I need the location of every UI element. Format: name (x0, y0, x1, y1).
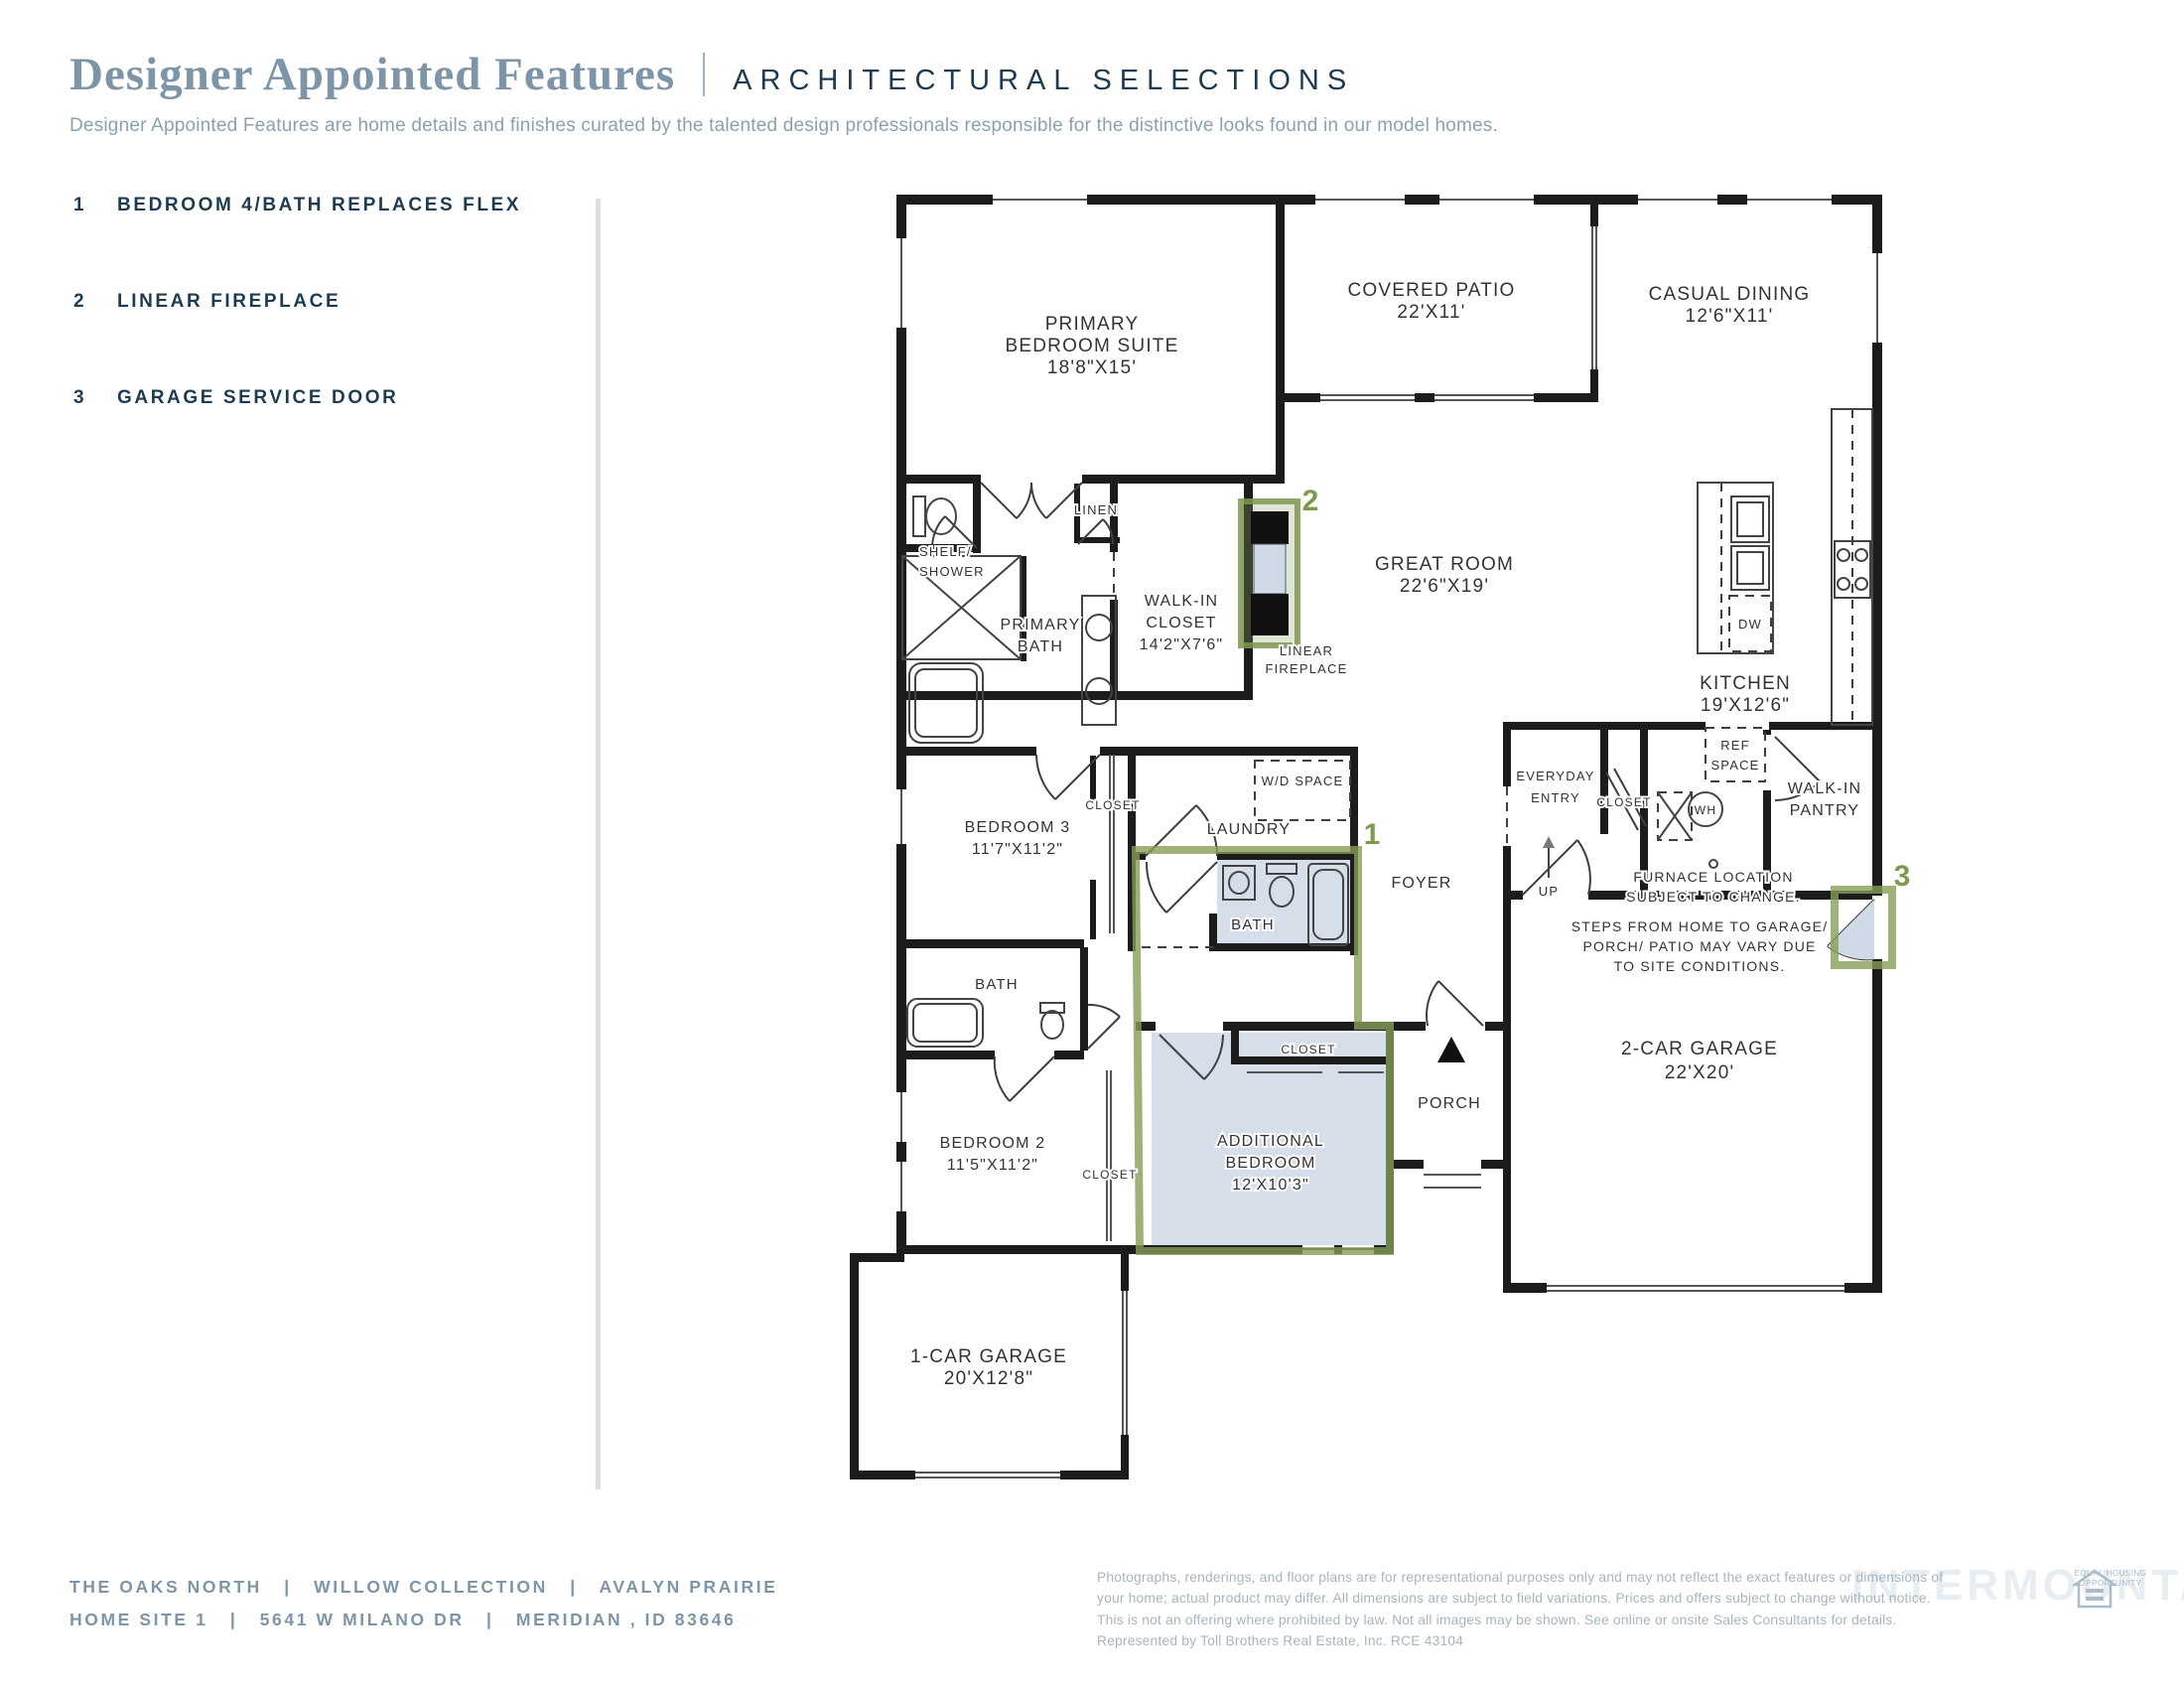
marker-1: 1 (1364, 818, 1381, 851)
room-label-primary-bath: PRIMARY (1000, 617, 1080, 633)
room-label-covered-patio: COVERED PATIO (1347, 280, 1515, 301)
label-linear-fireplace: LINEAR (1280, 643, 1333, 658)
note-steps: STEPS FROM HOME TO GARAGE/ (1571, 918, 1829, 934)
room-label-primary-bedroom: BEDROOM SUITE (1005, 336, 1178, 356)
room-label-additional-bedroom: BEDROOM (1225, 1155, 1315, 1172)
room-label-2-car-garage: 2-CAR GARAGE (1621, 1039, 1778, 1059)
room-label-bath: BATH (1231, 916, 1275, 933)
label-dw: DW (1738, 617, 1762, 632)
label-wh: WH (1695, 803, 1716, 817)
room-label-additional-bedroom: ADDITIONAL (1217, 1133, 1324, 1150)
room-label-bath: BATH (975, 976, 1019, 993)
room-dims-2-car-garage: 22'X20' (1665, 1062, 1735, 1083)
room-label-bedroom2: BEDROOM 2 (940, 1135, 1046, 1152)
room-label-porch: PORCH (1418, 1095, 1481, 1112)
tub-icon (907, 999, 983, 1047)
room-label-walk-in-pantry: WALK-IN (1788, 780, 1861, 797)
room-dims-casual-dining: 12'6"X11' (1686, 306, 1774, 327)
label-linear-fireplace: FIREPLACE (1265, 661, 1347, 676)
label-shower: SHOWER (919, 564, 985, 579)
room-label-kitchen: KITCHEN (1700, 673, 1791, 694)
note-furnace: FURNACE LOCATION (1633, 869, 1793, 885)
room-dims-bedroom3: 11'7"X11'2" (972, 841, 1063, 858)
label-up: UP (1539, 884, 1559, 899)
footer-disclaimer: Photographs, renderings, and floor plans… (1097, 1567, 2010, 1652)
label-ref-space: SPACE (1710, 758, 1759, 773)
room-label-great-room: GREAT ROOM (1375, 554, 1514, 575)
label-linen: LINEN (1074, 502, 1118, 517)
room-dims-great-room: 22'6"X19' (1400, 576, 1489, 597)
windows (896, 195, 1882, 1479)
label-closet: CLOSET (1085, 798, 1140, 812)
footer-line2: HOME SITE 1 | 5641 W MILANO DR | MERIDIA… (69, 1610, 777, 1630)
room-label-primary-bedroom: PRIMARY (1045, 314, 1140, 335)
room-label-walk-in-pantry: PANTRY (1790, 802, 1860, 819)
room-dims-covered-patio: 22'X11' (1397, 302, 1465, 323)
disclaimer-line: Represented by Toll Brothers Real Estate… (1097, 1630, 2010, 1651)
label-wd-space: W/D SPACE (1262, 774, 1344, 788)
marker-2: 2 (1302, 485, 1319, 517)
room-label-primary-bath: BATH (1018, 638, 1063, 655)
note-steps: PORCH/ PATIO MAY VARY DUE (1582, 938, 1816, 954)
label-closet: CLOSET (1082, 1168, 1137, 1182)
label-shelf: SHELF/ (919, 544, 972, 559)
kitchen-counter-icon (1832, 409, 1872, 725)
room-dims-walk-in-closet: 14'2"X7'6" (1140, 636, 1224, 653)
room-label-laundry: LAUNDRY (1207, 821, 1292, 838)
marker-3: 3 (1894, 860, 1911, 893)
room-label-everyday-entry: EVERYDAY (1516, 769, 1594, 783)
disclaimer-line: This is not an offering where prohibited… (1097, 1610, 2010, 1630)
footer-community-info: THE OAKS NORTH | WILLOW COLLECTION | AVA… (69, 1577, 777, 1642)
equal-housing-logo: EQUAL HOUSING OPPORTUNITY (2073, 1569, 2148, 1590)
room-label-walk-in-closet: WALK-IN (1145, 593, 1218, 610)
room-label-walk-in-closet: CLOSET (1146, 615, 1216, 632)
disclaimer-line: Photographs, renderings, and floor plans… (1097, 1567, 2010, 1588)
disclaimer-line: your home; actual product may differ. Al… (1097, 1588, 2010, 1609)
room-dims-additional-bedroom: 12'X10'3" (1232, 1177, 1309, 1194)
floor-plan: PRIMARY BEDROOM SUITE 18'8"X15' COVERED … (0, 0, 2184, 1688)
room-label-1-car-garage: 1-CAR GARAGE (910, 1346, 1067, 1367)
room-dims-bedroom2: 11'5"X11'2" (947, 1157, 1038, 1174)
room-label-casual-dining: CASUAL DINING (1649, 284, 1811, 305)
room-label-everyday-entry: ENTRY (1531, 790, 1580, 805)
room-label-bedroom3: BEDROOM 3 (965, 819, 1071, 836)
note-steps: TO SITE CONDITIONS. (1614, 958, 1786, 974)
entry-arrow-icon (1437, 1037, 1465, 1062)
label-ref-space: REF (1720, 738, 1750, 753)
note-furnace: SUBJECT TO CHANGE. (1626, 889, 1801, 905)
footer-line1: THE OAKS NORTH | WILLOW COLLECTION | AVA… (69, 1577, 777, 1598)
label-closet: CLOSET (1281, 1043, 1335, 1056)
room-dims-primary-bedroom: 18'8"X15' (1047, 357, 1137, 378)
label-closet: CLOSET (1596, 795, 1651, 809)
room-label-foyer: FOYER (1391, 875, 1451, 892)
toilet-icon (913, 496, 925, 536)
tub-icon (909, 663, 983, 743)
room-dims-kitchen: 19'X12'6" (1701, 695, 1790, 716)
equal-housing-house-icon (2073, 1569, 2116, 1609)
room-dims-1-car-garage: 20'X12'8" (944, 1368, 1033, 1389)
